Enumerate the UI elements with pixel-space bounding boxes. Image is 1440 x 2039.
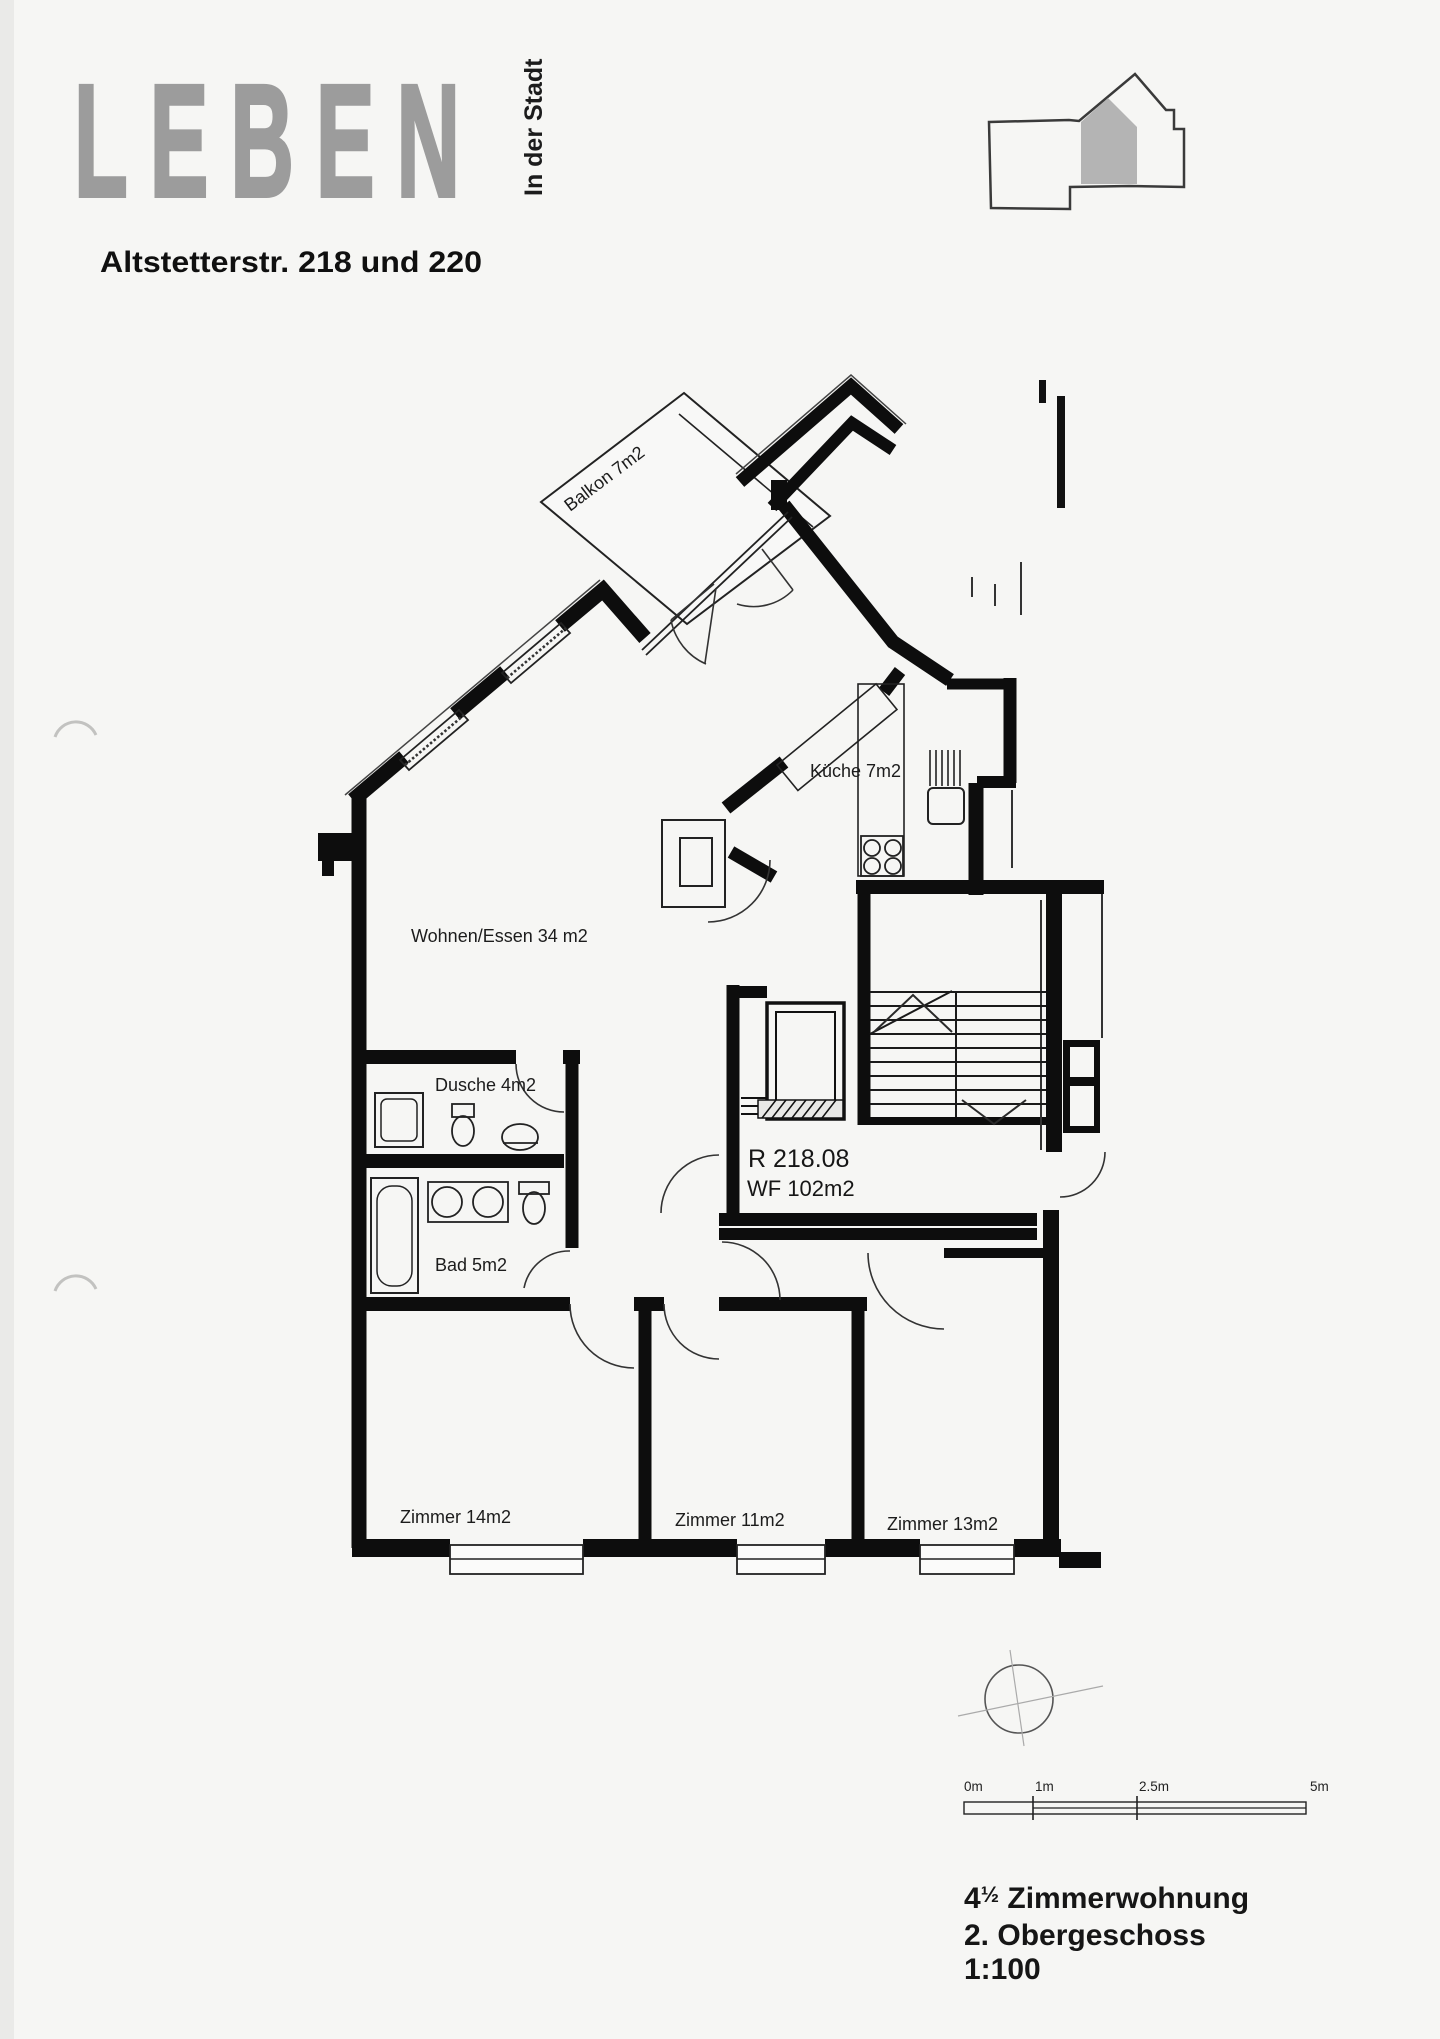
- svg-text:1m: 1m: [1035, 1779, 1054, 1794]
- svg-text:Altstetterstr. 218 und 220: Altstetterstr. 218 und 220: [100, 246, 482, 279]
- svg-text:Wohnen/Essen 34 m2: Wohnen/Essen 34 m2: [411, 926, 588, 946]
- svg-text:Bad 5m2: Bad 5m2: [435, 1255, 507, 1275]
- svg-text:Zimmer 13m2: Zimmer 13m2: [887, 1514, 998, 1534]
- svg-text:Küche 7m2: Küche 7m2: [810, 761, 901, 781]
- svg-text:0m: 0m: [964, 1779, 983, 1794]
- svg-text:WF 102m2: WF 102m2: [747, 1176, 855, 1201]
- svg-text:LEBEN: LEBEN: [74, 51, 482, 230]
- svg-text:1:100: 1:100: [964, 1953, 1041, 1986]
- svg-text:Dusche 4m2: Dusche 4m2: [435, 1075, 536, 1095]
- svg-text:In der Stadt: In der Stadt: [520, 58, 548, 196]
- svg-text:2.5m: 2.5m: [1139, 1779, 1169, 1794]
- svg-text:Zimmer 14m2: Zimmer 14m2: [400, 1507, 511, 1527]
- svg-text:2. Obergeschoss: 2. Obergeschoss: [964, 1919, 1206, 1952]
- svg-text:5m: 5m: [1310, 1779, 1329, 1794]
- svg-text:Zimmer 11m2: Zimmer 11m2: [675, 1510, 785, 1530]
- svg-text:4½ Zimmerwohnung: 4½ Zimmerwohnung: [964, 1882, 1249, 1915]
- svg-text:R 218.08: R 218.08: [748, 1145, 849, 1173]
